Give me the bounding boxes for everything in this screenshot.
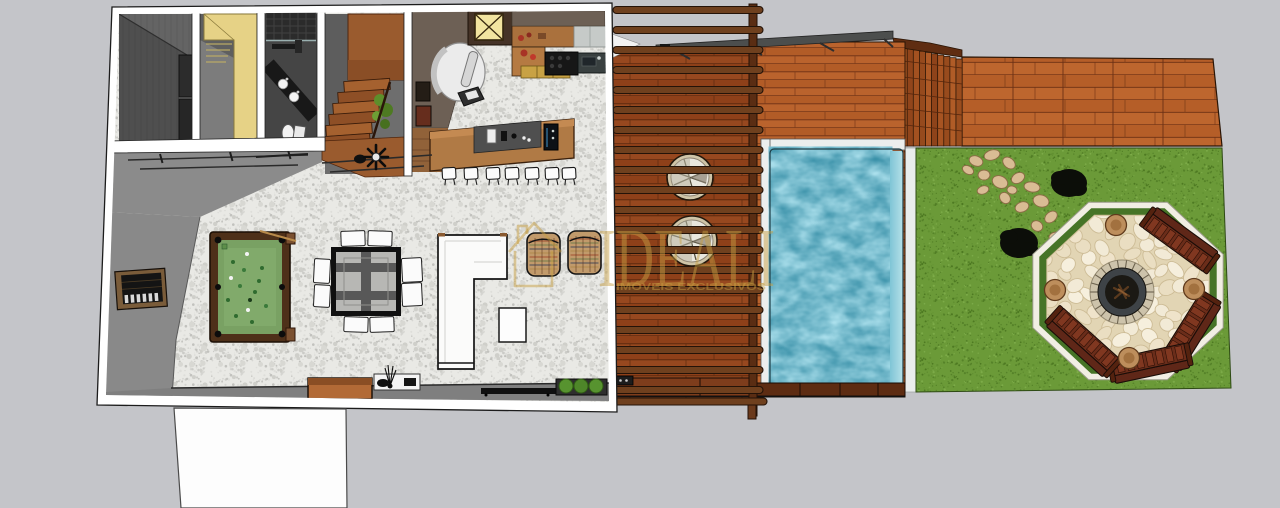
svg-text:IMÓVEIS EXCLUSIVOS: IMÓVEIS EXCLUSIVOS [616, 280, 766, 293]
